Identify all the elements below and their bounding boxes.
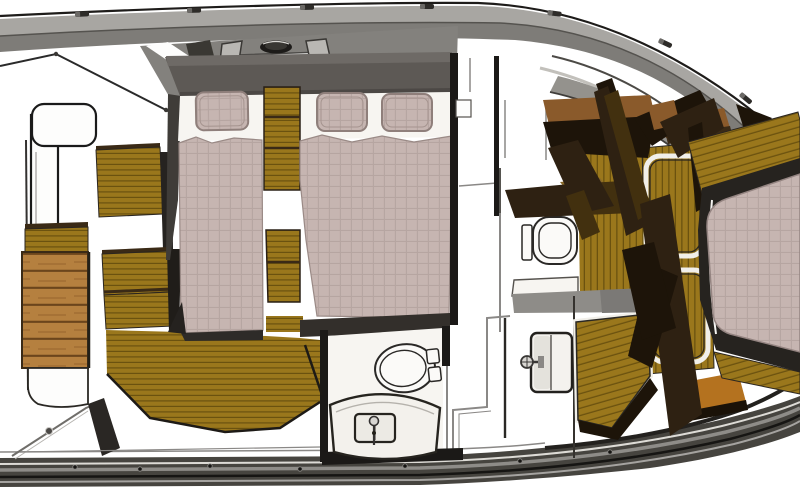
bench-step-low (25, 227, 88, 252)
bow-seat (32, 104, 96, 146)
forward-cabin (165, 52, 471, 341)
floorplan-canvas (0, 0, 800, 500)
aft-berth-mattress (707, 174, 800, 352)
bow-step-base (28, 368, 88, 407)
pillow (196, 92, 249, 131)
pillow (382, 94, 432, 131)
port-bed-wedge (166, 94, 181, 260)
corridor-wall (494, 56, 499, 216)
port-berth (168, 137, 263, 341)
bench-step-1 (96, 147, 163, 217)
toilet (522, 217, 577, 264)
cabin-bulkhead (450, 53, 458, 325)
forward-head (305, 326, 463, 465)
vanity (330, 394, 440, 459)
center-step-cabinet (264, 87, 303, 332)
yacht-floorplan-rendering (0, 0, 800, 500)
bulkhead-niche (456, 100, 471, 117)
pillow (317, 93, 367, 131)
head-wall-left (320, 330, 328, 462)
hull-shadow-wedge (88, 398, 120, 456)
starboard-berth (300, 135, 452, 337)
teak-cabin-floor (106, 330, 320, 432)
mid-vanity (505, 296, 574, 458)
slatted-steps (22, 252, 88, 368)
cabin-step-3 (104, 292, 173, 329)
head-wall-right (442, 326, 450, 366)
